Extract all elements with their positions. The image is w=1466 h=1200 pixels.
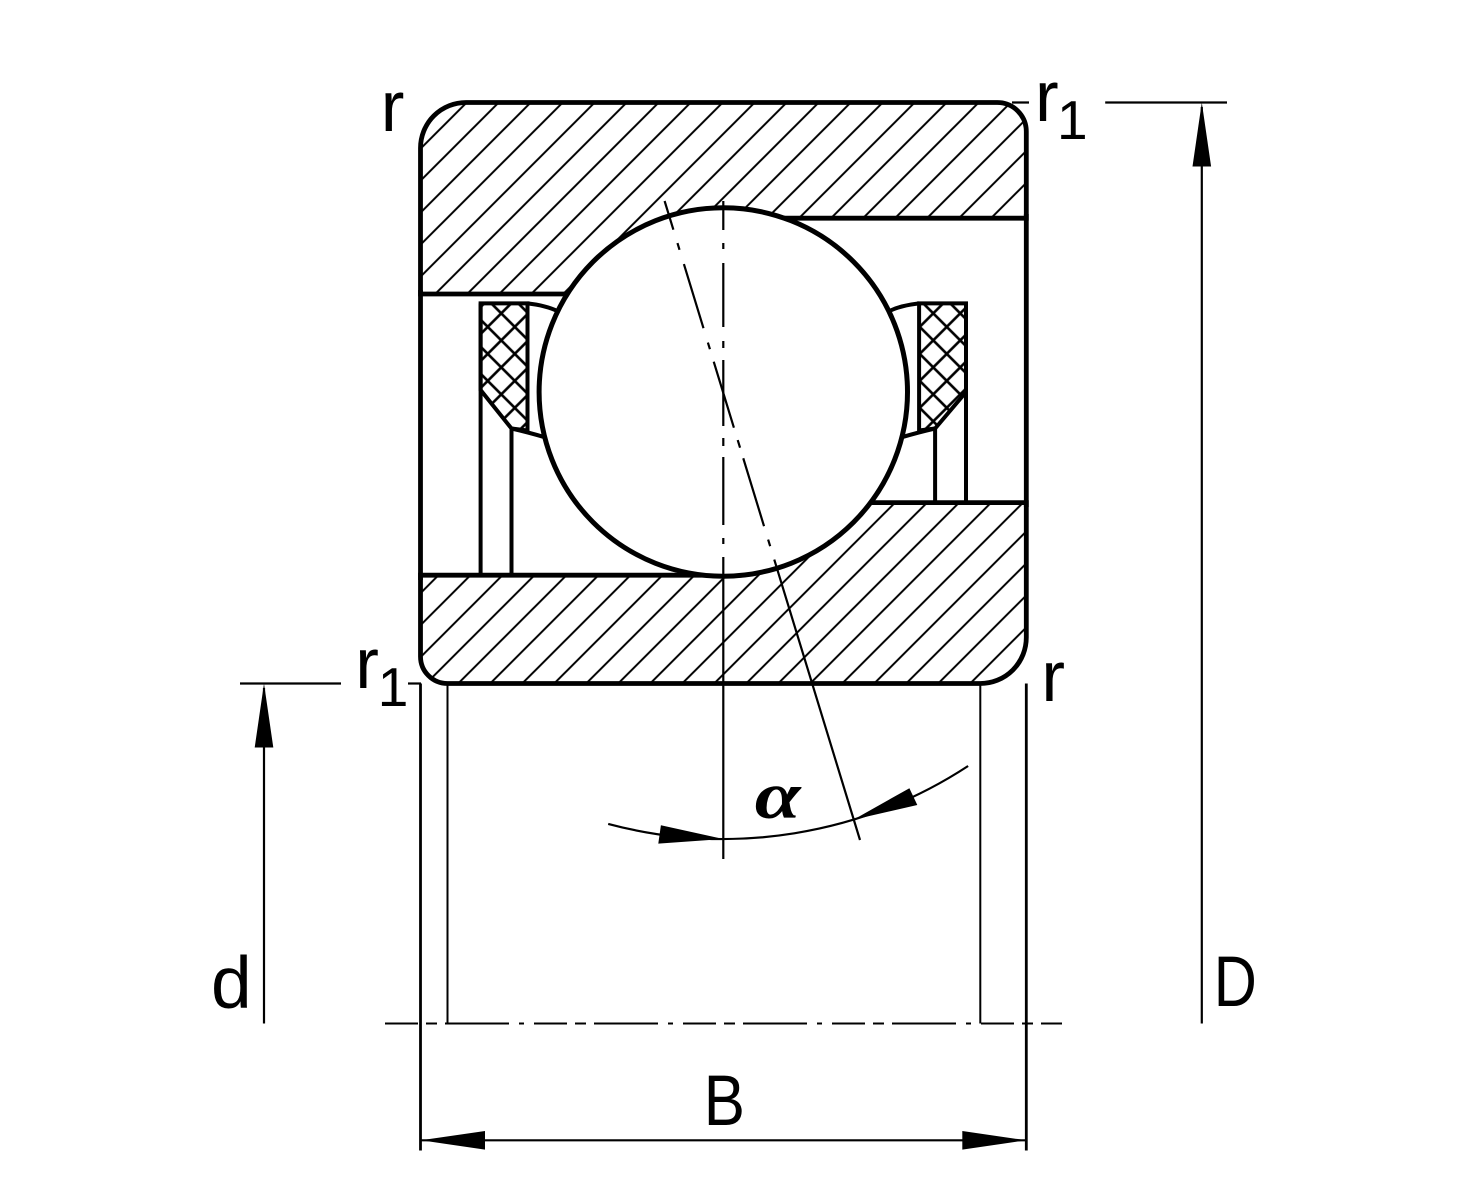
svg-text:1: 1 (1057, 89, 1088, 151)
svg-text:r: r (1035, 58, 1059, 137)
svg-text:B: B (704, 1062, 745, 1141)
svg-text:d: d (211, 941, 252, 1023)
svg-text:r: r (355, 625, 379, 704)
svg-text:1: 1 (378, 656, 409, 718)
svg-text:r: r (1041, 638, 1065, 717)
svg-text:D: D (1214, 942, 1257, 1021)
svg-text:r: r (381, 68, 405, 147)
svg-text:α: α (755, 760, 802, 833)
